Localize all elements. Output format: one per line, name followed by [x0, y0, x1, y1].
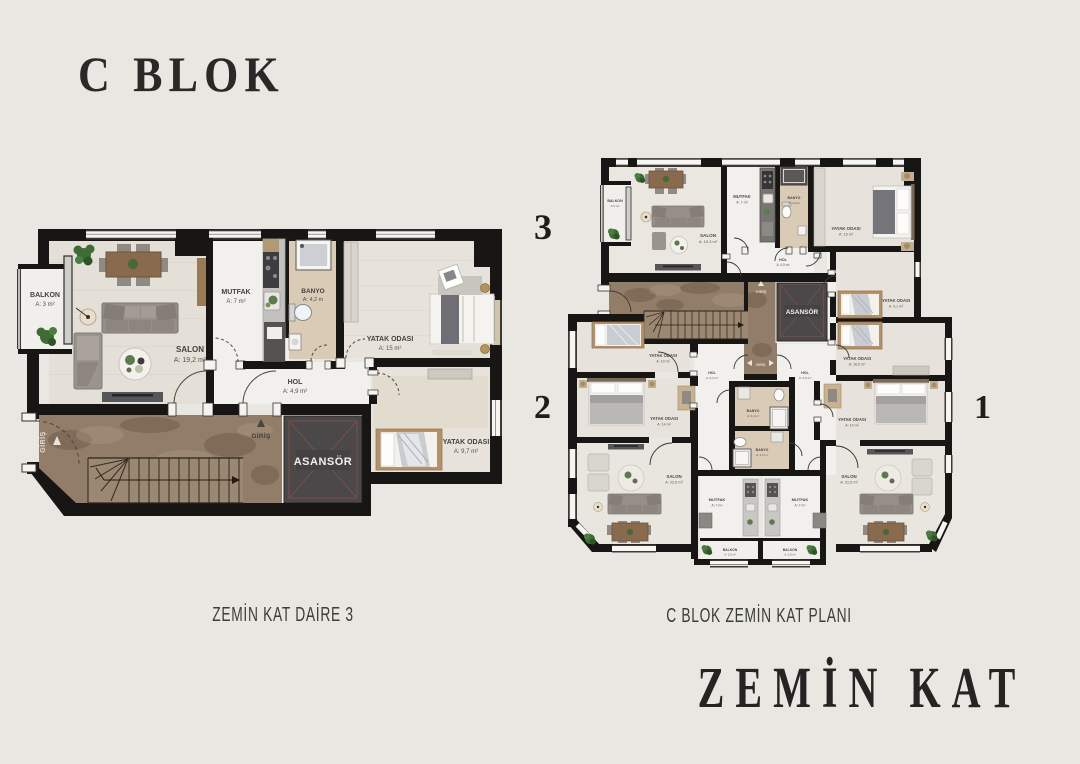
svg-text:C BLOK ZEMİN KAT PLANI: C BLOK ZEMİN KAT PLANI: [666, 603, 852, 626]
svg-text:ZEMİN KAT: ZEMİN KAT: [698, 656, 1027, 720]
svg-text:A: 6,6 m²: A: 6,6 m²: [799, 376, 811, 380]
svg-text:GİRİŞ: GİRİŞ: [251, 432, 271, 440]
svg-text:YATAK ODASI: YATAK ODASI: [843, 356, 871, 361]
svg-text:A: 2,5 m²: A: 2,5 m²: [784, 553, 795, 557]
svg-text:A: 4,2 m²: A: 4,2 m²: [747, 414, 759, 418]
svg-text:HOL: HOL: [708, 371, 716, 375]
svg-text:A: 2,5 m²: A: 2,5 m²: [724, 553, 735, 557]
svg-text:3: 3: [534, 207, 552, 247]
svg-text:1: 1: [974, 389, 991, 426]
svg-text:BANYO: BANYO: [747, 409, 760, 413]
svg-text:A: 16,5 m²: A: 16,5 m²: [849, 363, 866, 367]
svg-text:YATAK ODASI: YATAK ODASI: [649, 353, 677, 358]
svg-text:YATAK ODASI: YATAK ODASI: [838, 417, 866, 422]
svg-text:A: 22,5 m²: A: 22,5 m²: [665, 481, 683, 485]
svg-text:ASANSÖR: ASANSÖR: [294, 455, 353, 468]
svg-text:A: 9,1 m²: A: 9,1 m²: [889, 305, 904, 309]
svg-text:A: 19,3 m²: A: 19,3 m²: [699, 239, 718, 244]
svg-text:YATAK ODASI: YATAK ODASI: [367, 336, 414, 343]
svg-text:YATAK ODASI: YATAK ODASI: [831, 226, 860, 231]
svg-text:A: 7 m²: A: 7 m²: [736, 201, 748, 205]
svg-text:A: 15 m²: A: 15 m²: [839, 233, 854, 237]
svg-text:A: 7 m²: A: 7 m²: [712, 503, 724, 507]
svg-text:A: 7 m²: A: 7 m²: [795, 503, 807, 507]
svg-text:BALKON: BALKON: [607, 199, 623, 203]
svg-text:A: 14 m²: A: 14 m²: [657, 423, 671, 427]
svg-text:2: 2: [534, 389, 551, 426]
svg-text:A: 15 m²: A: 15 m²: [379, 346, 402, 352]
svg-text:BANYO: BANYO: [788, 196, 801, 200]
svg-text:A: 4,9 m²: A: 4,9 m²: [283, 389, 307, 395]
svg-text:A: 14 m²: A: 14 m²: [845, 424, 859, 428]
svg-text:A: 4,2 m²: A: 4,2 m²: [756, 453, 768, 457]
svg-text:BANYO: BANYO: [301, 288, 324, 295]
svg-text:GİRİŞ: GİRİŞ: [756, 289, 767, 294]
svg-text:SALON: SALON: [176, 345, 204, 354]
svg-text:SALON: SALON: [700, 233, 717, 238]
svg-text:A: 4,2 m: A: 4,2 m: [303, 297, 324, 303]
svg-text:A: 7 m²: A: 7 m²: [226, 299, 245, 305]
svg-text:A: 6,3 m²: A: 6,3 m²: [706, 376, 718, 380]
svg-text:HOL: HOL: [288, 379, 304, 386]
svg-text:A: 9,7 m²: A: 9,7 m²: [454, 449, 478, 455]
svg-text:BALKON: BALKON: [30, 292, 60, 299]
svg-text:SALON: SALON: [666, 474, 681, 479]
svg-text:MUTFAK: MUTFAK: [792, 497, 809, 502]
svg-text:A: 4,9 m²: A: 4,9 m²: [777, 263, 790, 267]
svg-text:GİRİŞ: GİRİŞ: [39, 431, 47, 453]
svg-text:YATAK ODASI: YATAK ODASI: [443, 439, 490, 446]
svg-text:BANYO: BANYO: [756, 448, 769, 452]
svg-text:A:3 m²: A:3 m²: [611, 204, 620, 208]
svg-text:C BLOK: C BLOK: [78, 47, 285, 102]
svg-text:A: 3 m²: A: 3 m²: [35, 302, 54, 308]
svg-text:A: 10 m²: A: 10 m²: [656, 360, 670, 364]
svg-text:A: 19,2 m²: A: 19,2 m²: [174, 357, 207, 364]
svg-text:HOL: HOL: [801, 371, 809, 375]
svg-text:BALKON: BALKON: [723, 548, 738, 552]
svg-text:MUTFAK: MUTFAK: [221, 289, 250, 296]
svg-text:SALON: SALON: [841, 474, 856, 479]
svg-text:A: 22,5 m²: A: 22,5 m²: [840, 481, 858, 485]
svg-text:YATAK ODASI: YATAK ODASI: [882, 298, 910, 303]
svg-text:A: 4,2m²: A: 4,2m²: [788, 201, 799, 205]
svg-text:BALKON: BALKON: [783, 548, 798, 552]
svg-text:YATAK ODASI: YATAK ODASI: [650, 416, 678, 421]
svg-text:GİRİŞ: GİRİŞ: [756, 363, 766, 367]
svg-text:MUTFAK: MUTFAK: [733, 194, 750, 199]
svg-text:HOL: HOL: [779, 258, 788, 262]
svg-text:ZEMİN KAT DAİRE 3: ZEMİN KAT DAİRE 3: [212, 602, 354, 625]
svg-text:ASANSÖR: ASANSÖR: [786, 307, 819, 316]
svg-text:MUTFAK: MUTFAK: [709, 497, 726, 502]
